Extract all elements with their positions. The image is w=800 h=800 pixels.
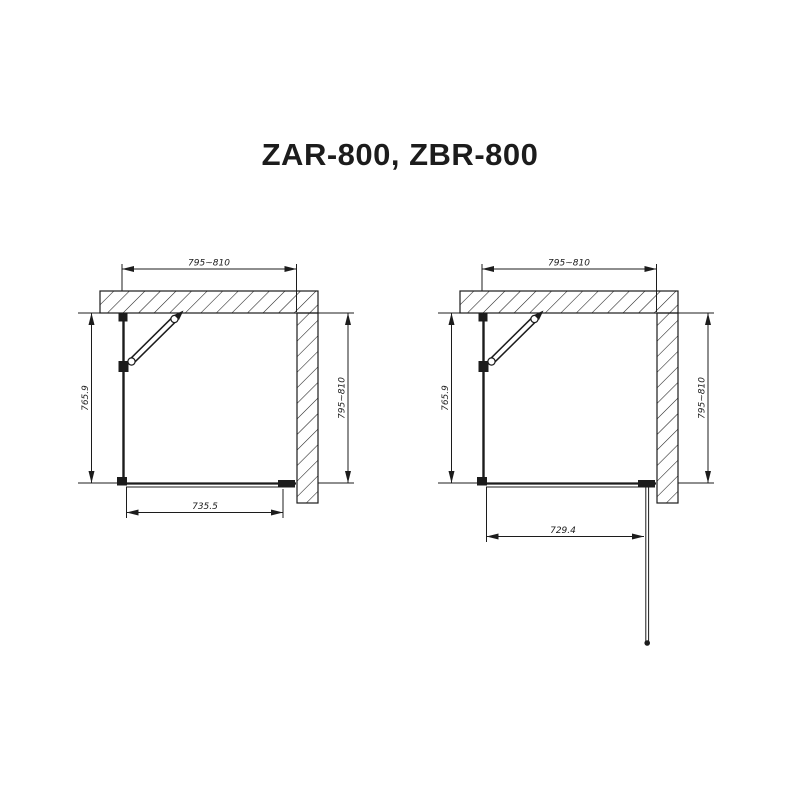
enclosure-drawing-right: [438, 264, 714, 503]
dim-label-top-left-diagram: 795~810: [188, 259, 230, 269]
dim-label-bottom-left-diagram: 735.5: [192, 502, 218, 512]
dim-label-left-left-diagram: 765.9: [81, 385, 91, 411]
dim-label-right-right-diagram: 795~810: [698, 377, 708, 419]
dim-label-bottom-right-diagram: 729.4: [550, 526, 576, 536]
dim-label-left-right-diagram: 765.9: [441, 385, 451, 411]
dim-label-right-left-diagram: 795~810: [338, 377, 348, 419]
dim-label-top-right-diagram: 795~810: [548, 259, 590, 269]
open-door-panel: [644, 486, 650, 646]
technical-drawing: 795~810 765.9 795~810 735.5 795~810 765.…: [0, 0, 800, 800]
enclosure-drawing-left: [78, 264, 354, 503]
